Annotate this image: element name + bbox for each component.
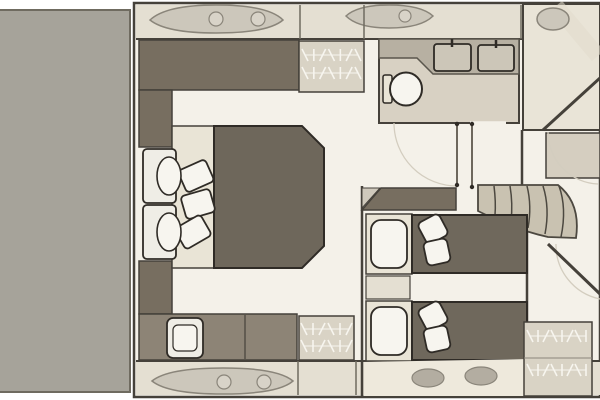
deck-hatch-top-circle-1	[209, 12, 223, 26]
yacht-lower-deck-floor-plan	[0, 0, 600, 400]
master-wardrobe-bottom	[299, 316, 354, 360]
master-top-cabinet	[139, 40, 299, 90]
twin-hull-band	[364, 359, 527, 396]
master-left-cabinet-lower	[139, 261, 172, 314]
deck-hatch-bottom-circle-2	[257, 375, 271, 389]
twin-bed-2-cushion-2	[423, 325, 451, 353]
master-wardrobe-top	[299, 41, 364, 92]
sink-2	[478, 45, 514, 71]
master-sofa	[139, 314, 297, 360]
toilet-bowl	[390, 73, 422, 106]
deck-hatch-bottom-circle-1	[217, 375, 231, 389]
garage-block	[0, 10, 130, 392]
deck-hatch-top-small	[346, 5, 433, 28]
twin-bed-2-pillow	[371, 307, 407, 355]
master-bed	[214, 126, 324, 268]
twin-nightstand	[366, 276, 410, 299]
master-left-cabinet-upper	[139, 90, 172, 147]
sink-1	[434, 44, 471, 71]
bow-wardrobe	[524, 322, 592, 396]
floor-plan-canvas	[0, 0, 600, 400]
shower-hatch	[537, 8, 569, 30]
twin-bed-1-pillow	[371, 220, 407, 268]
porthole-2	[465, 367, 497, 385]
armchair-1-cushion	[157, 157, 181, 195]
deck-hatch-top-small-circle	[399, 10, 411, 22]
twin-bed-1-cushion-2	[423, 238, 451, 266]
armchair-2-cushion	[157, 213, 181, 251]
master-sofa-seat-inner	[173, 325, 197, 351]
deck-hatch-top-circle-2	[251, 12, 265, 26]
porthole-1	[412, 369, 444, 387]
